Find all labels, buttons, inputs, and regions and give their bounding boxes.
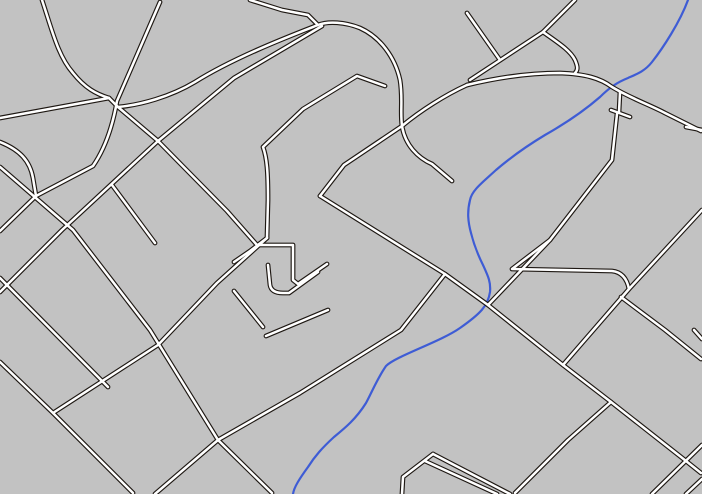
street-map — [0, 0, 702, 494]
map-canvas[interactable] — [0, 0, 702, 494]
road-hammer-stub — [619, 92, 620, 112]
map-background — [0, 0, 702, 494]
